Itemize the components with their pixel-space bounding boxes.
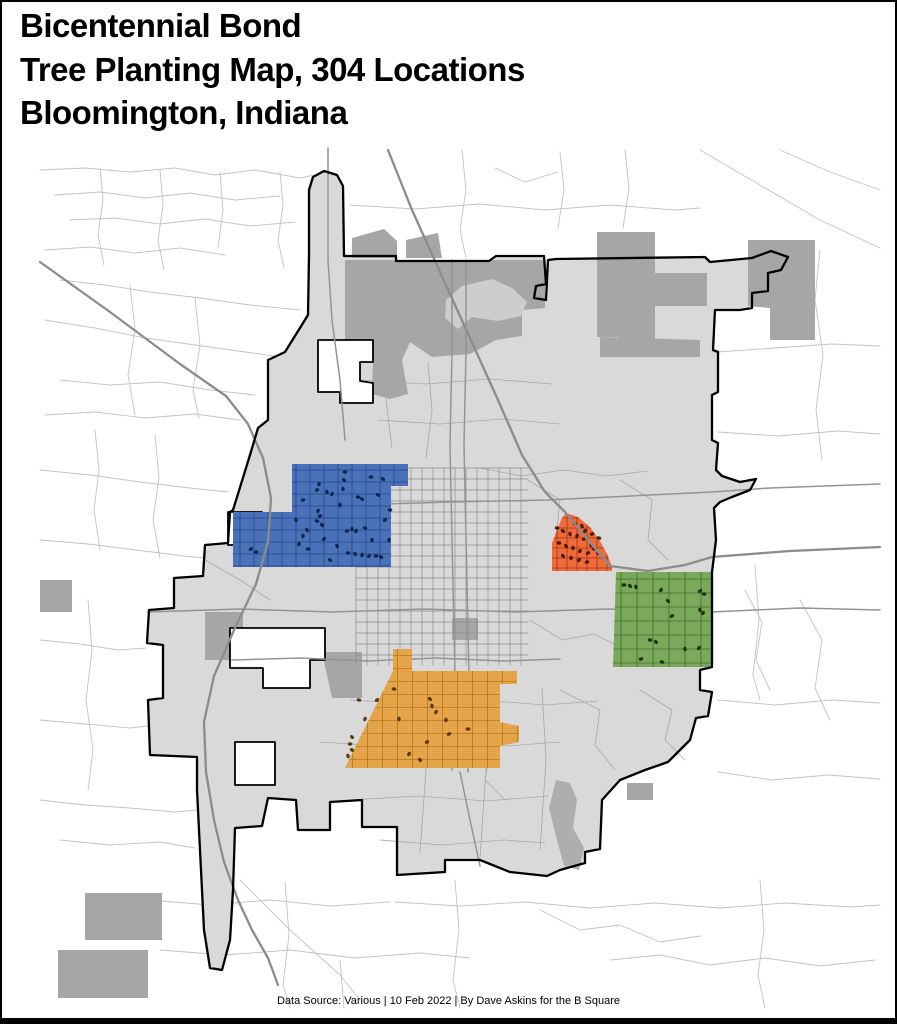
gray-patch: [40, 580, 72, 612]
tree-location-dot: [622, 583, 627, 586]
gray-patch: [85, 893, 162, 940]
tree-location-dot: [343, 470, 348, 473]
tree-location-dot: [348, 742, 353, 745]
map-credits: Data Source: Various | 10 Feb 2022 | By …: [0, 995, 897, 1007]
title-line-3: Bloomington, Indiana: [20, 91, 525, 135]
planting-zone-green: [613, 572, 712, 667]
gray-patch: [452, 618, 478, 640]
enclave: [235, 742, 275, 785]
gray-patch: [58, 950, 148, 998]
gray-patch: [600, 337, 700, 357]
bloomington-map: [0, 0, 897, 1024]
map-title: Bicentennial Bond Tree Planting Map, 304…: [20, 4, 525, 135]
title-line-1: Bicentennial Bond: [20, 4, 525, 48]
zone-fill-green: [613, 572, 712, 667]
tree-location-dot: [555, 526, 560, 529]
gray-patch: [627, 783, 653, 800]
title-line-2: Tree Planting Map, 304 Locations: [20, 48, 525, 92]
